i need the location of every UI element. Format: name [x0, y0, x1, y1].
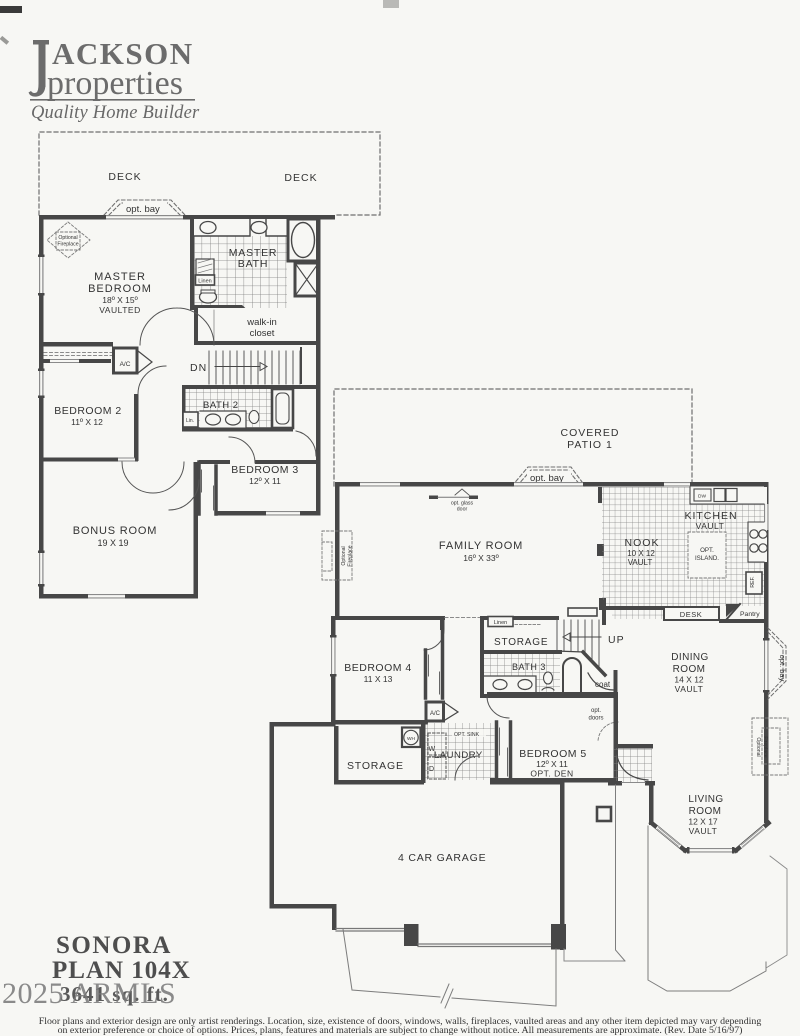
svg-text:DECK: DECK [284, 172, 317, 184]
svg-text:Lin.: Lin. [186, 418, 194, 424]
svg-text:Linen: Linen [198, 279, 211, 285]
svg-text:Fireplace: Fireplace [762, 736, 768, 757]
svg-text:Optional: Optional [755, 737, 761, 756]
svg-text:14 X 12: 14 X 12 [674, 675, 704, 685]
svg-text:BEDROOM 3: BEDROOM 3 [231, 464, 299, 476]
svg-text:Fireplace: Fireplace [57, 242, 78, 248]
svg-text:walk-in: walk-in [246, 317, 277, 328]
svg-text:PATIO 1: PATIO 1 [567, 439, 613, 451]
svg-text:Fireplace: Fireplace [348, 545, 354, 566]
svg-text:12º X 11: 12º X 11 [249, 476, 281, 486]
svg-text:WH: WH [407, 736, 416, 742]
svg-text:11º X 12: 11º X 12 [71, 417, 103, 427]
svg-text:OPT.: OPT. [700, 547, 714, 554]
svg-text:12 X 17: 12 X 17 [688, 817, 718, 827]
svg-text:opt. bay: opt. bay [126, 204, 160, 215]
svg-text:BEDROOM: BEDROOM [88, 283, 152, 295]
svg-text:ROOM: ROOM [689, 806, 722, 817]
svg-text:REF.: REF. [750, 576, 756, 587]
svg-text:COVERED: COVERED [561, 427, 620, 439]
svg-text:12º X 11: 12º X 11 [536, 759, 568, 769]
svg-text:VAULT: VAULT [696, 521, 725, 531]
svg-text:A/C: A/C [120, 361, 131, 368]
svg-text:Optional: Optional [341, 546, 347, 565]
svg-text:STORAGE: STORAGE [494, 637, 548, 648]
svg-text:DN: DN [190, 362, 207, 374]
svg-text:Pantry: Pantry [740, 611, 760, 618]
svg-text:VAULTED: VAULTED [99, 305, 140, 315]
svg-text:10 X 12: 10 X 12 [627, 549, 655, 558]
svg-text:SONORA: SONORA [56, 932, 172, 959]
svg-text:VAULT: VAULT [689, 826, 718, 836]
svg-text:BONUS ROOM: BONUS ROOM [73, 525, 157, 537]
svg-text:ROOM: ROOM [673, 664, 706, 675]
svg-text:DECK: DECK [108, 171, 141, 183]
svg-text:BEDROOM 2: BEDROOM 2 [54, 405, 122, 417]
svg-text:BATH 2: BATH 2 [203, 400, 239, 411]
svg-text:DINING: DINING [671, 652, 708, 663]
svg-text:doors: doors [588, 716, 603, 722]
svg-text:BEDROOM 4: BEDROOM 4 [344, 662, 412, 674]
svg-text:16º X 33º: 16º X 33º [463, 553, 499, 563]
svg-text:11 X 13: 11 X 13 [364, 674, 393, 684]
svg-text:FAMILY ROOM: FAMILY ROOM [439, 540, 523, 552]
svg-text:opt. bay: opt. bay [778, 655, 787, 682]
svg-text:BATH 3: BATH 3 [512, 662, 546, 672]
svg-text:2025 ARMLS: 2025 ARMLS [2, 977, 176, 1010]
svg-text:NOOK: NOOK [625, 537, 660, 549]
svg-text:coat: coat [595, 680, 611, 689]
svg-text:door: door [457, 507, 468, 513]
svg-text:on exterior preference or choi: on exterior preference or choice of opti… [58, 1025, 743, 1036]
svg-text:VAULT: VAULT [675, 684, 704, 694]
svg-text:opt.: opt. [591, 708, 601, 714]
svg-text:D: D [429, 766, 434, 773]
svg-text:properties: properties [47, 65, 183, 102]
svg-text:A/C: A/C [430, 711, 441, 717]
svg-text:OPT. SINK: OPT. SINK [454, 732, 480, 738]
svg-text:Quality Home Builder: Quality Home Builder [31, 103, 200, 123]
svg-text:18º X 15º: 18º X 15º [102, 295, 138, 305]
svg-text:OPT. DEN: OPT. DEN [530, 769, 573, 779]
svg-text:STORAGE: STORAGE [347, 760, 404, 772]
svg-text:4 CAR GARAGE: 4 CAR GARAGE [398, 852, 486, 864]
svg-text:LIVING: LIVING [688, 794, 723, 805]
svg-text:ISLAND.: ISLAND. [695, 555, 719, 562]
svg-text:BATH: BATH [238, 258, 268, 270]
svg-text:19 X 19: 19 X 19 [97, 538, 128, 548]
svg-text:UP: UP [608, 634, 625, 646]
svg-text:closet: closet [250, 328, 275, 339]
svg-text:Linen: Linen [494, 620, 507, 626]
svg-text:W: W [429, 746, 436, 753]
svg-text:DW: DW [698, 494, 706, 500]
svg-text:MASTER: MASTER [94, 271, 146, 283]
svg-text:Optional: Optional [58, 235, 77, 241]
svg-text:DESK: DESK [680, 610, 702, 619]
svg-text:VAULT: VAULT [628, 558, 653, 567]
